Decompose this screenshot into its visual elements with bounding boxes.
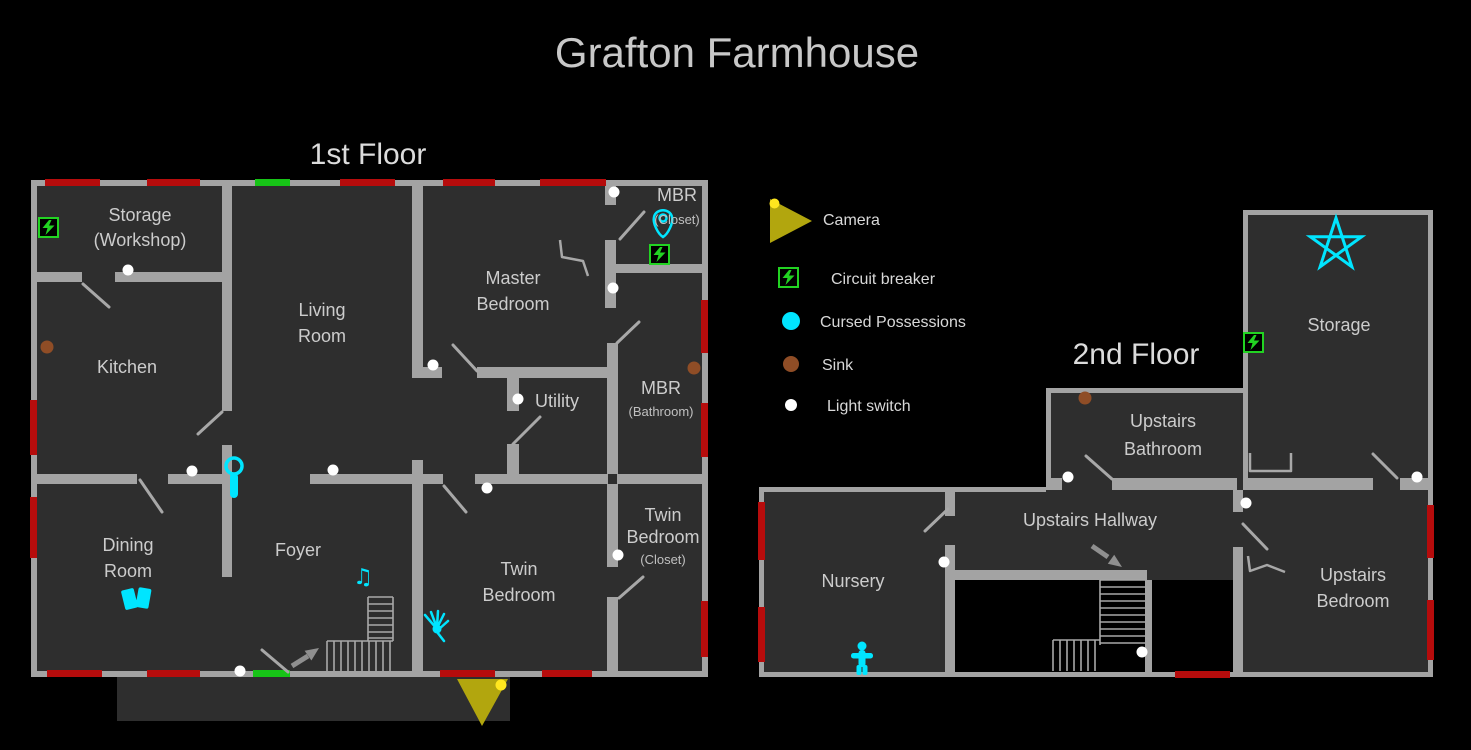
light-switch-icon bbox=[785, 399, 797, 411]
legend-cursed-label: Cursed Possessions bbox=[820, 314, 966, 331]
room-label-dining-2: Room bbox=[104, 561, 152, 581]
first-floor-heading: 1st Floor bbox=[310, 138, 427, 171]
window-marker bbox=[701, 601, 708, 657]
light-switch-icon bbox=[1063, 472, 1074, 483]
wall bbox=[1112, 478, 1237, 490]
window-marker bbox=[758, 502, 765, 560]
light-switch-icon bbox=[939, 557, 950, 568]
room-label-foyer: Foyer bbox=[275, 540, 321, 560]
wall bbox=[412, 460, 423, 671]
wall bbox=[31, 671, 708, 677]
circuit-breaker-icon bbox=[779, 268, 798, 287]
camera-dot-icon bbox=[770, 199, 780, 209]
sink-icon bbox=[688, 362, 701, 375]
room-label-twin-closet-3: (Closet) bbox=[640, 552, 686, 567]
window-marker bbox=[147, 670, 200, 677]
light-switch-icon bbox=[608, 283, 619, 294]
window-marker bbox=[45, 179, 100, 186]
sink-icon bbox=[1079, 392, 1092, 405]
legend: Camera Circuit breaker Cursed Possession… bbox=[770, 199, 966, 416]
doll-leg bbox=[863, 665, 868, 675]
room-label-storage: Storage bbox=[108, 205, 171, 225]
window-marker bbox=[701, 300, 708, 353]
room-label-storage2: Storage bbox=[1307, 315, 1370, 335]
cursed-possession-icon bbox=[782, 312, 800, 330]
window-marker bbox=[701, 403, 708, 457]
wall bbox=[949, 487, 1046, 492]
music-box-icon: ♫ bbox=[353, 565, 373, 590]
wall bbox=[759, 487, 949, 492]
wall bbox=[507, 444, 519, 484]
wall bbox=[412, 367, 442, 378]
window-marker bbox=[30, 400, 37, 455]
circuit-breaker-icon bbox=[1244, 333, 1263, 352]
light-switch-icon bbox=[609, 187, 620, 198]
legend-breaker-label: Circuit breaker bbox=[831, 271, 936, 288]
window-marker bbox=[542, 670, 592, 677]
exit-door-marker bbox=[255, 179, 290, 186]
wall bbox=[222, 183, 232, 411]
room-label-upstairs-bathroom-2: Bathroom bbox=[1124, 439, 1202, 459]
light-switch-icon bbox=[328, 465, 339, 476]
room-label-upstairs-bedroom: Upstairs bbox=[1320, 565, 1386, 585]
window-marker bbox=[440, 670, 495, 677]
room-label-twin-2: Bedroom bbox=[482, 585, 555, 605]
legend-light-switch-label: Light switch bbox=[827, 398, 911, 415]
light-switch-icon bbox=[428, 360, 439, 371]
wall bbox=[955, 570, 1147, 580]
floorplan-svg: Grafton Farmhouse 1st Floor 2nd Floor Ca… bbox=[0, 0, 1471, 750]
wall bbox=[607, 597, 618, 671]
wall bbox=[412, 183, 423, 378]
wall bbox=[605, 240, 616, 308]
light-switch-icon bbox=[1412, 472, 1423, 483]
doll-head bbox=[858, 642, 867, 651]
light-switch-icon bbox=[613, 550, 624, 561]
room-label-mbr-bath: MBR bbox=[641, 378, 681, 398]
room-label-upstairs-bedroom-2: Bedroom bbox=[1316, 591, 1389, 611]
wall bbox=[607, 343, 618, 474]
wall bbox=[1145, 580, 1152, 672]
room-label-dining: Dining bbox=[102, 535, 153, 555]
wall bbox=[477, 367, 618, 378]
doll-body bbox=[859, 650, 866, 667]
room-label-twin-closet: Twin bbox=[644, 505, 681, 525]
window-marker bbox=[1175, 671, 1230, 678]
room-label-living-2: Room bbox=[298, 326, 346, 346]
wall bbox=[1428, 210, 1433, 490]
room-label-upstairs-bathroom: Upstairs bbox=[1130, 411, 1196, 431]
wall bbox=[1243, 210, 1433, 215]
legend-sink-label: Sink bbox=[822, 357, 854, 374]
wall bbox=[616, 264, 708, 273]
light-switch-icon bbox=[1241, 498, 1252, 509]
mirror-handle bbox=[230, 473, 238, 498]
floorplan-page: Grafton Farmhouse 1st Floor 2nd Floor Ca… bbox=[0, 0, 1471, 750]
light-switch-icon bbox=[123, 265, 134, 276]
wall bbox=[1046, 478, 1062, 490]
window-marker bbox=[30, 497, 37, 558]
window-marker bbox=[1427, 600, 1434, 660]
window-marker bbox=[1427, 505, 1434, 558]
circuit-breaker-icon bbox=[650, 245, 669, 264]
sink-icon bbox=[783, 356, 799, 372]
sink-icon bbox=[41, 341, 54, 354]
window-marker bbox=[47, 670, 102, 677]
room-label-storage-2: (Workshop) bbox=[94, 230, 187, 250]
wall bbox=[1233, 547, 1243, 672]
wall bbox=[31, 272, 82, 282]
window-marker bbox=[540, 179, 606, 186]
room-label-mbr-bath-2: (Bathroom) bbox=[628, 404, 693, 419]
light-switch-icon bbox=[187, 466, 198, 477]
light-switch-icon bbox=[235, 666, 246, 677]
wall bbox=[31, 474, 137, 484]
wall bbox=[310, 474, 443, 484]
room-label-mbr-closet-2: (Closet) bbox=[654, 212, 700, 227]
room-label-twin-closet-2: Bedroom bbox=[626, 527, 699, 547]
light-switch-icon bbox=[482, 483, 493, 494]
circuit-breaker-icon bbox=[39, 218, 58, 237]
first-floor-map: ♫ Storage (Workshop) Kitchen Living Room… bbox=[30, 179, 708, 726]
window-marker bbox=[758, 607, 765, 662]
room-label-nursery: Nursery bbox=[821, 571, 884, 591]
room-label-mbr-closet: MBR bbox=[657, 185, 697, 205]
window-marker bbox=[147, 179, 200, 186]
wall bbox=[115, 272, 232, 282]
wall bbox=[617, 474, 708, 484]
room-label-living: Living bbox=[298, 300, 345, 320]
wall bbox=[475, 474, 608, 484]
wall bbox=[1248, 478, 1373, 490]
light-switch-icon bbox=[1137, 647, 1148, 658]
stairwell-void bbox=[955, 580, 1233, 672]
front-porch bbox=[117, 677, 510, 721]
page-title: Grafton Farmhouse bbox=[555, 29, 919, 76]
window-marker bbox=[443, 179, 495, 186]
legend-camera-label: Camera bbox=[823, 212, 880, 229]
camera-dot-icon bbox=[496, 680, 507, 691]
second-floor-heading: 2nd Floor bbox=[1073, 338, 1200, 371]
room-label-upstairs-hallway: Upstairs Hallway bbox=[1023, 510, 1157, 530]
room-label-twin: Twin bbox=[500, 559, 537, 579]
room-label-master: Master bbox=[485, 268, 540, 288]
exit-door-marker bbox=[253, 670, 290, 677]
doll-leg bbox=[857, 665, 862, 675]
wall bbox=[1046, 388, 1243, 393]
room-label-kitchen: Kitchen bbox=[97, 357, 157, 377]
light-switch-icon bbox=[513, 394, 524, 405]
wall bbox=[1046, 388, 1051, 490]
window-marker bbox=[340, 179, 395, 186]
room-label-master-2: Bedroom bbox=[476, 294, 549, 314]
room-label-utility: Utility bbox=[535, 391, 579, 411]
